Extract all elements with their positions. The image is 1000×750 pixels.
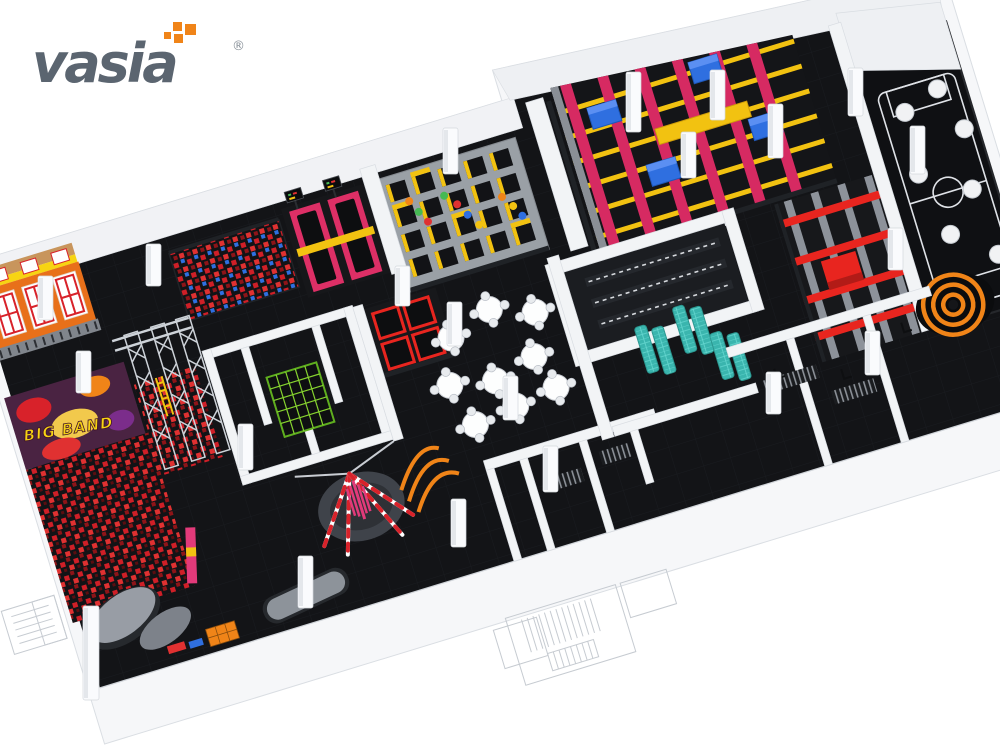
support-column <box>888 228 903 270</box>
support-column <box>626 72 641 132</box>
logo-registered-mark: ® <box>232 39 245 54</box>
support-column <box>238 424 253 470</box>
support-column <box>865 331 880 375</box>
support-column <box>681 132 696 178</box>
logo-brand-text: vasia <box>32 32 176 95</box>
vasia-logo: vasia ® <box>26 14 256 100</box>
support-column <box>298 556 313 608</box>
support-column <box>76 351 91 393</box>
support-column <box>503 376 518 420</box>
floorplan-scene: BIG BAND <box>0 0 1000 750</box>
support-column <box>848 68 863 116</box>
climb-pole <box>185 527 197 583</box>
support-column <box>710 70 725 120</box>
support-column <box>395 266 410 306</box>
support-column <box>83 606 99 700</box>
support-column <box>543 446 558 492</box>
support-column <box>447 302 462 346</box>
cad-stair-outline-left <box>1 595 67 654</box>
support-column <box>146 244 161 286</box>
support-column <box>768 104 783 158</box>
support-column <box>766 372 781 414</box>
support-column <box>451 499 466 547</box>
support-column <box>443 128 458 174</box>
support-column <box>38 276 53 320</box>
support-column <box>910 126 925 174</box>
trampoline-park-render: vasia ® <box>0 0 1000 750</box>
